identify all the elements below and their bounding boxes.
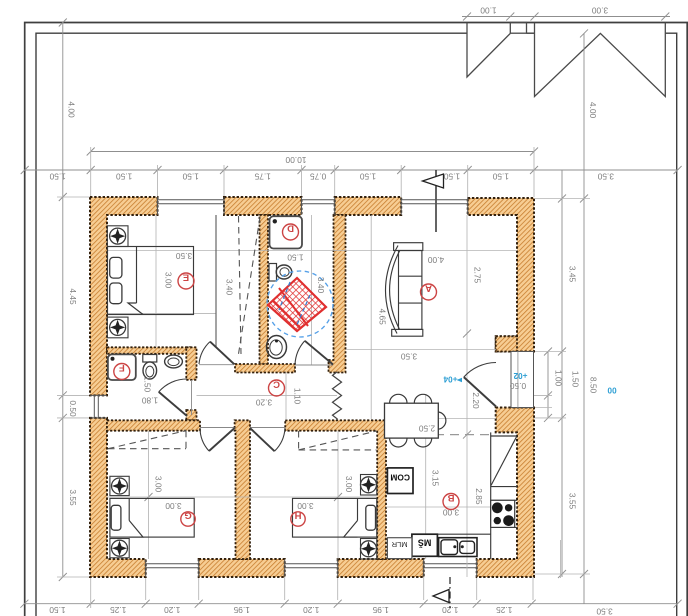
svg-text:3.45: 3.45 — [568, 266, 578, 283]
svg-text:3.40: 3.40 — [316, 277, 326, 294]
svg-text:2.85: 2.85 — [474, 488, 484, 505]
svg-text:1.50: 1.50 — [49, 172, 66, 182]
svg-text:D: D — [287, 223, 294, 234]
svg-text:4.45: 4.45 — [68, 288, 78, 305]
svg-text:B: B — [447, 492, 454, 503]
svg-text:3.50: 3.50 — [176, 251, 193, 261]
svg-text:1.00: 1.00 — [480, 5, 497, 15]
svg-text:1.50: 1.50 — [444, 172, 461, 182]
svg-text:1.50: 1.50 — [492, 172, 509, 182]
svg-text:3.15: 3.15 — [431, 470, 441, 487]
svg-text:10.00: 10.00 — [285, 155, 306, 165]
svg-text:2.50: 2.50 — [419, 423, 436, 433]
svg-text:3.00: 3.00 — [164, 272, 174, 289]
svg-text:1.25: 1.25 — [496, 605, 513, 615]
svg-text:3.50: 3.50 — [597, 172, 614, 182]
svg-text:+04: +04 — [443, 374, 457, 383]
svg-text:8.50: 8.50 — [589, 377, 599, 394]
svg-text:1.50: 1.50 — [360, 172, 377, 182]
svg-text:3.50: 3.50 — [401, 351, 418, 361]
svg-text:2.20: 2.20 — [471, 392, 481, 409]
svg-text:3.00: 3.00 — [154, 476, 164, 493]
svg-text:3.00: 3.00 — [165, 501, 182, 511]
svg-text:4.00: 4.00 — [588, 102, 598, 119]
svg-text:3.50: 3.50 — [596, 606, 613, 616]
svg-text:1.95: 1.95 — [233, 605, 250, 615]
svg-text:1.50: 1.50 — [116, 172, 133, 182]
svg-text:C: C — [273, 379, 280, 390]
svg-text:00: 00 — [607, 385, 617, 394]
svg-text:1.20: 1.20 — [303, 605, 320, 615]
svg-text:1.00: 1.00 — [554, 370, 564, 387]
svg-text:+02: +02 — [513, 371, 527, 380]
svg-text:MLR: MLR — [391, 540, 408, 549]
svg-text:1.75: 1.75 — [254, 172, 271, 182]
svg-text:0.50: 0.50 — [510, 381, 527, 391]
svg-text:1.20: 1.20 — [164, 605, 181, 615]
svg-text:1.50: 1.50 — [143, 376, 153, 393]
svg-text:0.50: 0.50 — [68, 400, 78, 417]
svg-text:G: G — [184, 510, 191, 521]
svg-text:4.00: 4.00 — [428, 255, 445, 265]
svg-text:1.50: 1.50 — [182, 172, 199, 182]
svg-text:0.75: 0.75 — [310, 172, 327, 182]
svg-text:3.00: 3.00 — [297, 501, 314, 511]
svg-text:A: A — [425, 283, 432, 294]
svg-text:3.20: 3.20 — [256, 397, 273, 407]
svg-text:3.55: 3.55 — [68, 489, 78, 506]
svg-text:1.25: 1.25 — [110, 605, 127, 615]
svg-text:COM: COM — [390, 473, 410, 483]
svg-text:4.65: 4.65 — [378, 309, 388, 326]
svg-text:1.50: 1.50 — [287, 253, 304, 263]
svg-text:4.00: 4.00 — [67, 101, 77, 118]
svg-text:H: H — [294, 510, 301, 521]
svg-text:1.95: 1.95 — [372, 605, 389, 615]
svg-text:3.55: 3.55 — [568, 493, 578, 510]
svg-text:3.40: 3.40 — [225, 279, 235, 296]
svg-text:1.50: 1.50 — [49, 605, 66, 615]
svg-text:2.75: 2.75 — [473, 267, 483, 284]
svg-text:E: E — [183, 272, 189, 283]
svg-text:3.00: 3.00 — [592, 5, 609, 15]
svg-text:3.00: 3.00 — [344, 476, 354, 493]
svg-text:1.10: 1.10 — [293, 388, 303, 405]
svg-text:F: F — [119, 362, 125, 373]
svg-text:1.50: 1.50 — [571, 371, 581, 388]
svg-text:1.80: 1.80 — [142, 396, 159, 406]
svg-text:MŠ: MŠ — [418, 537, 432, 548]
